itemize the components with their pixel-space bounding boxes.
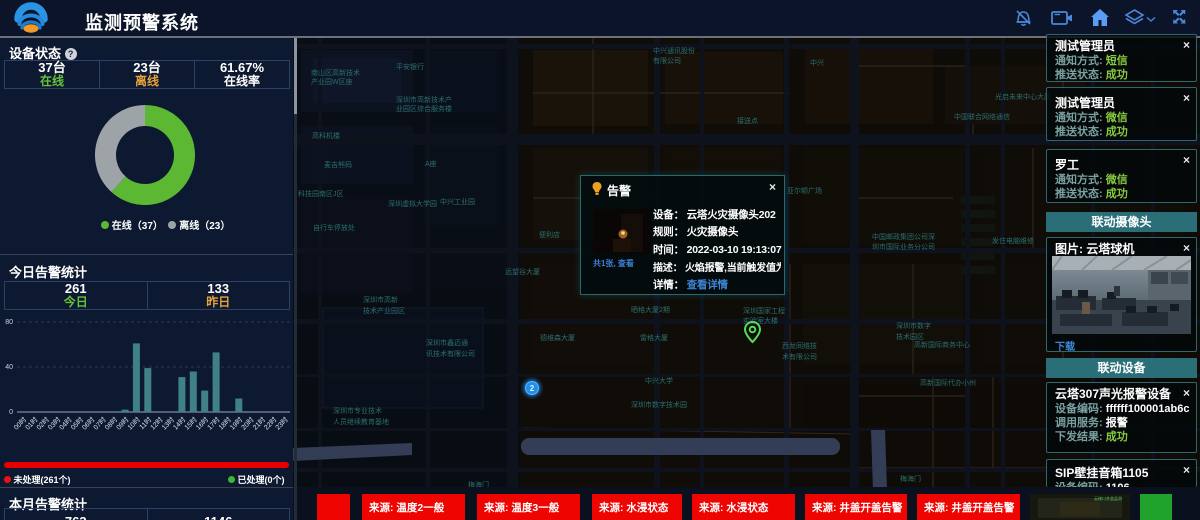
- svg-text:发住电脑维修: 发住电脑维修: [992, 236, 1034, 245]
- svg-text:梅海门: 梅海门: [900, 474, 921, 483]
- svg-text:深圳国家工程: 深圳国家工程: [743, 306, 785, 315]
- svg-text:中兴通讯股份: 中兴通讯股份: [653, 46, 695, 55]
- svg-text:深圳市数字技术园: 深圳市数字技术园: [631, 400, 687, 409]
- svg-text:技术园区: 技术园区: [896, 332, 924, 341]
- svg-text:深圳市鑫迈通: 深圳市鑫迈通: [426, 338, 468, 347]
- svg-text:南山区高新技术: 南山区高新技术: [311, 68, 360, 77]
- svg-text:圳市国际业务分公司: 圳市国际业务分公司: [872, 242, 935, 251]
- svg-text:深圳市数字: 深圳市数字: [896, 321, 931, 330]
- svg-text:深圳市高新: 深圳市高新: [363, 295, 398, 304]
- svg-text:40: 40: [5, 364, 13, 371]
- svg-text:中兴大学: 中兴大学: [645, 376, 673, 385]
- svg-text:麦吉熊码: 麦吉熊码: [324, 160, 352, 169]
- svg-text:有限公司: 有限公司: [653, 56, 681, 65]
- svg-text:2: 2: [530, 384, 535, 393]
- svg-text:西龙同络技: 西龙同络技: [782, 341, 817, 350]
- svg-text:中国邮政集团公司深: 中国邮政集团公司深: [872, 232, 935, 241]
- svg-text:技术产业园区: 技术产业园区: [363, 306, 405, 315]
- svg-text:A座: A座: [425, 159, 437, 168]
- svg-text:中兴: 中兴: [810, 58, 824, 67]
- svg-text:亚尔顿广场: 亚尔顿广场: [787, 186, 822, 195]
- svg-text:平安银行: 平安银行: [396, 62, 424, 71]
- svg-text:便利店: 便利店: [539, 230, 560, 239]
- svg-text:远望谷大厦: 远望谷大厦: [505, 267, 540, 276]
- svg-text:深圳市高新技术产: 深圳市高新技术产: [396, 95, 452, 104]
- svg-text:产业园W区座: 产业园W区座: [311, 77, 353, 86]
- svg-text:科技园南区J区: 科技园南区J区: [298, 189, 344, 198]
- svg-text:中国联合网络通信: 中国联合网络通信: [954, 112, 1010, 121]
- svg-text:中兴工业园: 中兴工业园: [440, 197, 475, 206]
- svg-text:晒格大厦2期: 晒格大厦2期: [631, 305, 670, 314]
- svg-text:接送点: 接送点: [737, 116, 758, 125]
- svg-text:业园区综合服务楼: 业园区综合服务楼: [396, 104, 452, 113]
- svg-text:深圳市专业技术: 深圳市专业技术: [333, 406, 382, 415]
- svg-text:雷格大厦: 雷格大厦: [640, 333, 668, 342]
- svg-text:自行车停放处: 自行车停放处: [313, 223, 355, 232]
- svg-text:80: 80: [5, 319, 13, 326]
- svg-text:0: 0: [9, 409, 13, 416]
- svg-text:高科机楼: 高科机楼: [312, 131, 340, 140]
- svg-text:术有限公司: 术有限公司: [782, 352, 817, 361]
- svg-text:讯技术有限公司: 讯技术有限公司: [426, 349, 475, 358]
- svg-text:光启未来中心大厦: 光启未来中心大厦: [995, 92, 1051, 101]
- svg-text:高新国际商务中心: 高新国际商务中心: [914, 340, 970, 349]
- svg-text:云梯口井盖监测: 云梯口井盖监测: [1094, 495, 1122, 501]
- svg-text:德维森大厦: 德维森大厦: [540, 333, 575, 342]
- svg-text:深圳虚拟大学园: 深圳虚拟大学园: [388, 199, 437, 208]
- svg-text:高新国际代办小州: 高新国际代办小州: [920, 378, 976, 387]
- svg-text:人员继续教育基地: 人员继续教育基地: [333, 417, 389, 426]
